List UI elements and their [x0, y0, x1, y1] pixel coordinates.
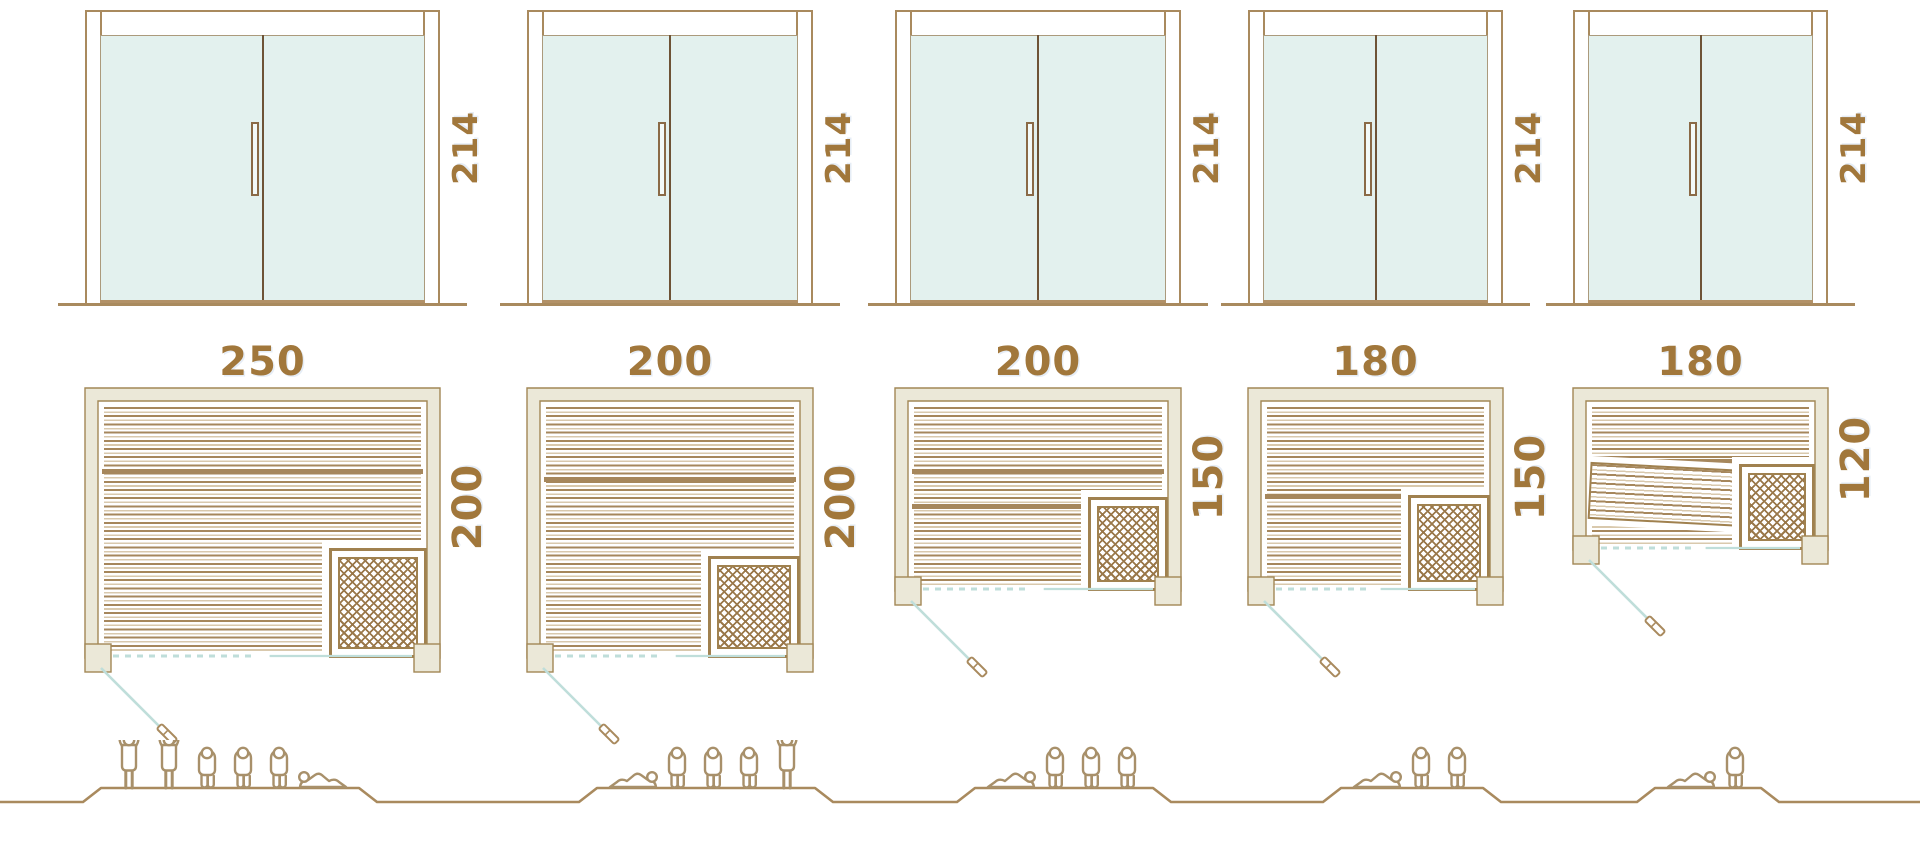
plan-height-label: 150 [1186, 434, 1232, 521]
person-sitting-icon [1727, 748, 1743, 788]
capacity-band [0, 740, 1920, 843]
door-jamb-right [1164, 10, 1181, 306]
plan-height-label: 120 [1833, 416, 1879, 503]
plan-width-label: 200 [995, 339, 1082, 385]
door-jamb-foot-right [1477, 577, 1503, 605]
door-glass-divider [1375, 35, 1377, 303]
door-handle [251, 122, 259, 196]
door-header [100, 10, 425, 37]
door-jamb-right [423, 10, 440, 306]
person-lying-icon [610, 772, 657, 787]
door-swing-handle-icon [967, 657, 988, 678]
plan-top-view [895, 388, 1181, 706]
door-height-label: 214 [1834, 111, 1874, 185]
door-elevation [1573, 10, 1828, 306]
person-sitting-icon [669, 748, 685, 788]
door-jamb-foot-left [1573, 536, 1599, 564]
capacity-group [1668, 748, 1743, 788]
person-sitting-icon [1449, 748, 1465, 788]
door-jamb-foot-left [895, 577, 921, 605]
plan-height-label: 200 [818, 464, 864, 551]
door-floor-line [1546, 303, 1855, 306]
door-jamb-right [1811, 10, 1828, 306]
plan-structure [1573, 388, 1828, 665]
door-handle [1689, 122, 1697, 196]
ground-line [0, 788, 1920, 802]
plan-top-view [1248, 388, 1503, 706]
person-lying-icon [988, 772, 1035, 787]
door-glass-divider [1700, 35, 1702, 303]
plan-top-view [1573, 388, 1828, 665]
person-lying-icon [1668, 772, 1715, 787]
capacity-group [988, 748, 1135, 788]
door-floor-line [868, 303, 1208, 306]
door-jamb-foot-right [414, 644, 440, 672]
plan-walls [1573, 388, 1828, 550]
door-handle [1026, 122, 1034, 196]
door-glass-divider [1037, 35, 1039, 303]
door-jamb-foot-right [1802, 536, 1828, 564]
plan-top-view [85, 388, 440, 773]
plan-top-view [527, 388, 813, 773]
door-header [1263, 10, 1488, 37]
door-jamb-foot-left [1248, 577, 1274, 605]
door-height-label: 214 [819, 111, 859, 185]
door-header [1588, 10, 1813, 37]
plan-height-label: 150 [1508, 434, 1554, 521]
door-jamb-foot-left [527, 644, 553, 672]
plan-walls [85, 388, 440, 658]
door-header [542, 10, 798, 37]
door-floor-line [500, 303, 840, 306]
door-height-label: 214 [1509, 111, 1549, 185]
plan-structure [1248, 388, 1503, 706]
door-jamb-foot-right [1155, 577, 1181, 605]
door-swing-handle-icon [1645, 616, 1666, 637]
plan-walls [527, 388, 813, 658]
door-handle [1364, 122, 1372, 196]
plan-width-label: 180 [1657, 339, 1744, 385]
plan-structure [85, 388, 440, 773]
person-sitting-icon [235, 748, 251, 788]
door-jamb-foot-right [787, 644, 813, 672]
plan-width-label: 180 [1332, 339, 1419, 385]
door-height-label: 214 [446, 111, 486, 185]
door-header [910, 10, 1166, 37]
person-sitting-icon [1413, 748, 1429, 788]
door-floor-line [1221, 303, 1530, 306]
plan-structure [527, 388, 813, 773]
plan-height-label: 200 [445, 464, 491, 551]
door-elevation [527, 10, 813, 306]
plan-walls [1248, 388, 1503, 591]
person-standing-icon [120, 740, 139, 788]
person-sitting-icon [271, 748, 287, 788]
door-elevation [1248, 10, 1503, 306]
door-floor-line [58, 303, 467, 306]
person-standing-icon [160, 740, 179, 788]
diagram-canvas: 2142502002142002002142001502141801502141… [0, 0, 1920, 843]
person-sitting-icon [1083, 748, 1099, 788]
plan-structure [895, 388, 1181, 706]
capacity-group [1354, 748, 1465, 788]
plan-walls [895, 388, 1181, 591]
door-height-label: 214 [1187, 111, 1227, 185]
door-elevation [85, 10, 440, 306]
door-jamb-foot-left [85, 644, 111, 672]
person-sitting-icon [741, 748, 757, 788]
person-sitting-icon [1119, 748, 1135, 788]
door-swing-handle-icon [1320, 657, 1341, 678]
plan-width-label: 200 [627, 339, 714, 385]
door-handle [658, 122, 666, 196]
door-elevation [895, 10, 1181, 306]
capacity-group [610, 740, 796, 788]
person-sitting-icon [1047, 748, 1063, 788]
door-jamb-right [796, 10, 813, 306]
person-standing-icon [778, 740, 797, 788]
person-lying-icon [1354, 772, 1401, 787]
person-sitting-icon [705, 748, 721, 788]
person-sitting-icon [199, 748, 215, 788]
door-glass-divider [262, 35, 264, 303]
capacity-group [120, 740, 346, 788]
door-glass-divider [669, 35, 671, 303]
plan-width-label: 250 [219, 339, 306, 385]
person-lying-icon [299, 772, 346, 787]
door-jamb-right [1486, 10, 1503, 306]
